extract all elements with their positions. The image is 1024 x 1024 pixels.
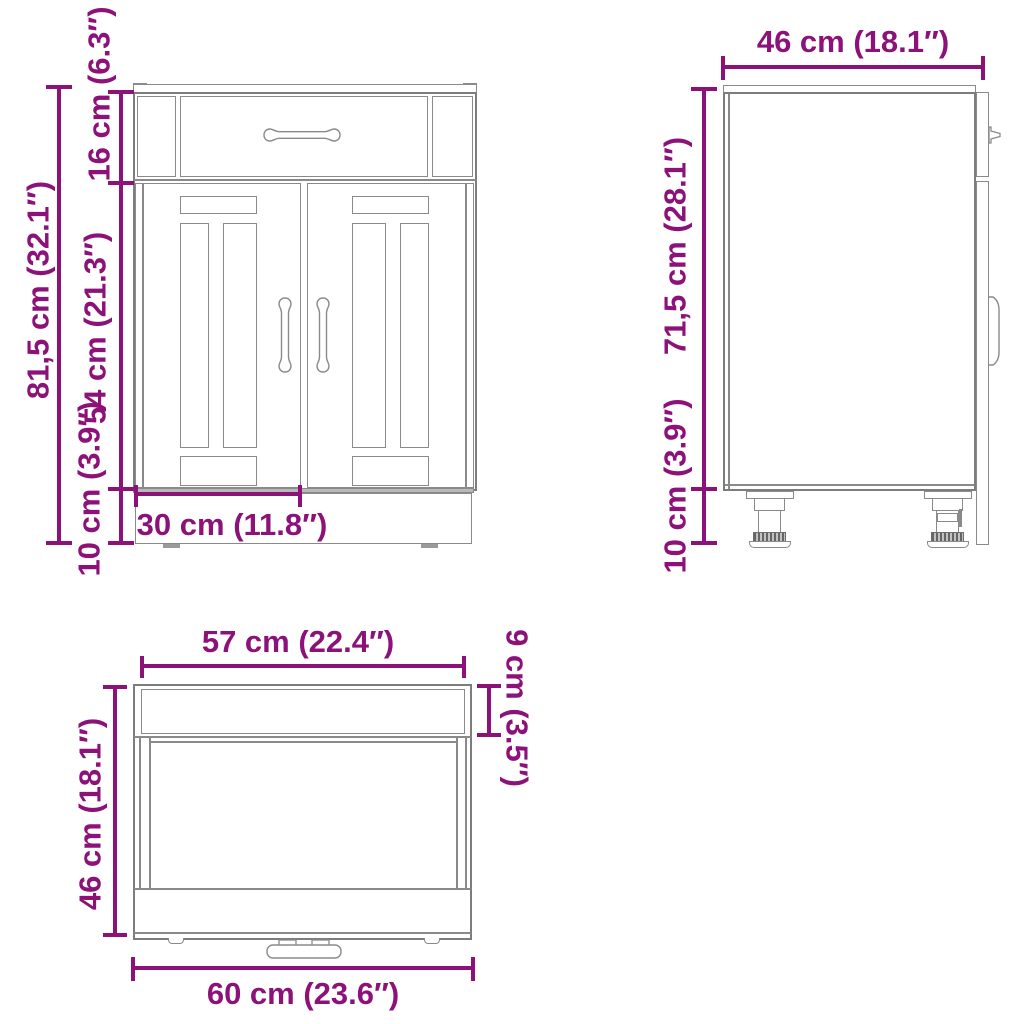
- top-view-drawer-handle: [266, 939, 342, 959]
- top-back-band-bottom-line: [134, 932, 471, 934]
- top-back-band-top-line: [134, 888, 471, 890]
- dim-tick: [471, 957, 475, 981]
- dim-label-top-depth: 46 cm (18.1″): [75, 718, 106, 910]
- dim-tick: [462, 656, 466, 678]
- dim-tick: [131, 957, 135, 981]
- top-side-wall-right-outer: [465, 737, 467, 889]
- technical-drawing-canvas: 81,5 cm (32.1″) 16 cm (6.3″) 54 cm (21.3…: [0, 0, 1024, 1024]
- dim-line-top-depth: [113, 685, 117, 937]
- dim-label-top-total-width: 60 cm (23.6″): [207, 978, 399, 1009]
- dim-line-top-front-width: [144, 664, 464, 668]
- dim-line-top-total-width: [133, 966, 475, 970]
- dim-label-top-front-width: 57 cm (22.4″): [202, 626, 394, 657]
- dim-label-top-front-depth: 9 cm (3.5″): [502, 629, 533, 787]
- dim-tick: [103, 685, 127, 689]
- top-interior-front-line: [149, 741, 457, 743]
- dim-tick: [477, 733, 501, 737]
- top-side-wall-right-inner: [456, 737, 458, 889]
- dim-tick: [103, 933, 127, 937]
- top-foot-notch-left: [168, 938, 184, 944]
- top-side-wall-left-outer: [139, 737, 141, 889]
- dim-tick: [140, 656, 144, 678]
- dim-tick: [477, 684, 501, 688]
- top-foot-notch-right: [424, 938, 440, 944]
- top-front-panel-bottom-line: [134, 736, 471, 738]
- top-front-panel: [141, 689, 465, 734]
- dim-line-top-front-depth: [487, 684, 491, 737]
- top-view: 57 cm (22.4″) 9 cm (3.5″) 46 cm (18.1″) …: [0, 0, 1024, 1024]
- top-side-wall-left-inner: [149, 737, 151, 889]
